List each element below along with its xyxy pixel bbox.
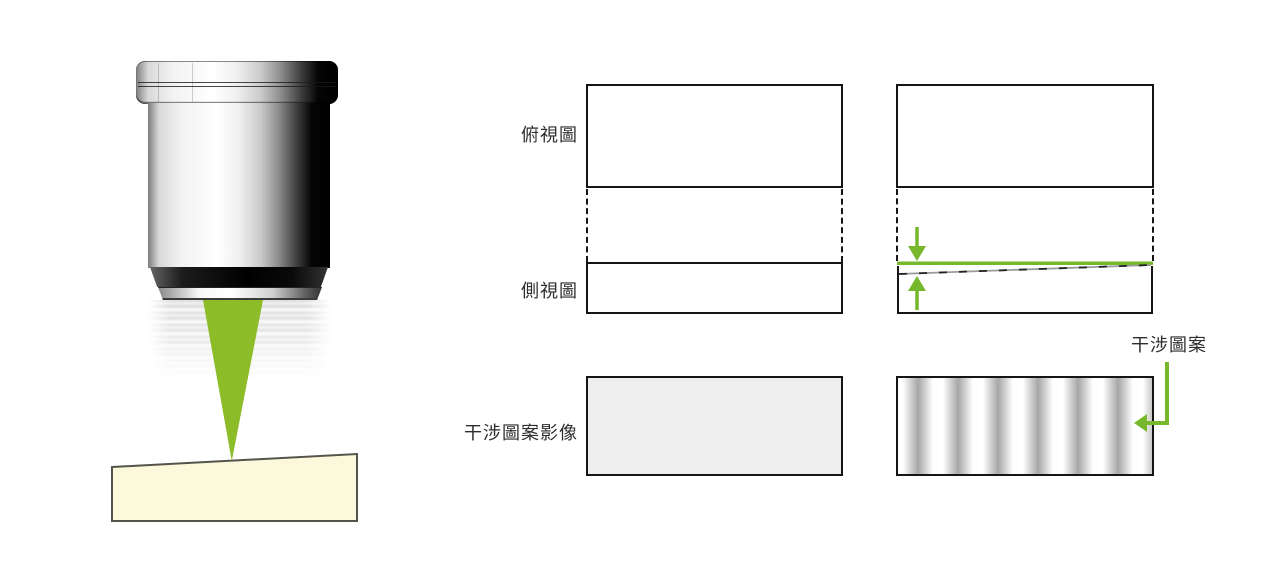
tilted-interference-image-box <box>896 376 1154 476</box>
tilted-sample <box>108 448 364 528</box>
projection-dash-line <box>586 189 588 262</box>
objective-nosepiece <box>150 267 328 287</box>
interference-image-label: 干涉圖案影像 <box>448 424 578 442</box>
flat-top-view-box <box>586 84 843 188</box>
down-arrow-icon <box>908 227 926 261</box>
objective-barrel <box>148 103 330 268</box>
elbow-arrow-icon <box>1130 355 1190 435</box>
figure-canvas: 俯視圖 側視圖 干涉圖案影像 干涉圖案 <box>0 0 1280 572</box>
up-arrow-icon <box>908 276 926 310</box>
cap-seam-line <box>192 63 193 102</box>
top-view-label: 俯視圖 <box>498 126 578 144</box>
projection-dash-line <box>841 189 843 262</box>
objective-cap <box>136 61 338 104</box>
tilted-top-view-box <box>896 84 1154 188</box>
cap-seam-line <box>138 82 336 83</box>
cap-seam-line <box>158 63 159 102</box>
interference-pattern-label: 干涉圖案 <box>1131 336 1221 354</box>
cap-seam-line <box>138 86 336 87</box>
objective-front-ring <box>158 287 322 300</box>
flat-interference-image-box <box>586 376 843 476</box>
reference-plane-line <box>897 262 1153 266</box>
flat-side-view-box <box>586 262 843 314</box>
tilted-side-view <box>895 225 1155 317</box>
side-view-label: 側視圖 <box>498 282 578 300</box>
